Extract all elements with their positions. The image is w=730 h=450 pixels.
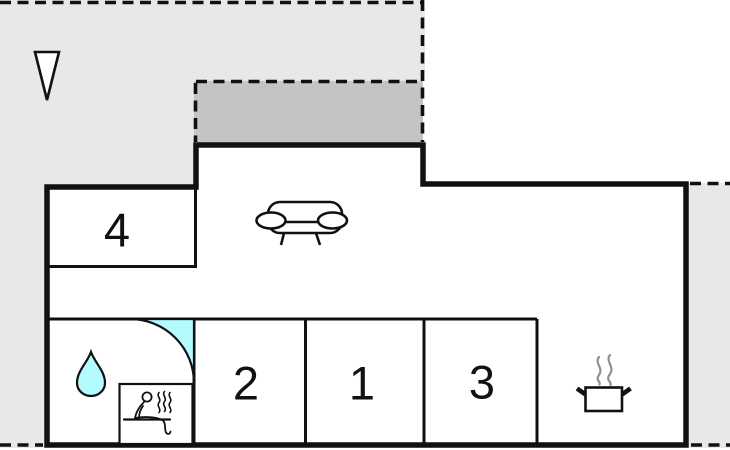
room-label-4: 4 <box>104 207 130 254</box>
terrace-area <box>194 81 423 144</box>
room-label-2: 2 <box>233 360 259 407</box>
room-label-1: 1 <box>349 360 375 407</box>
room-label-3: 3 <box>469 359 495 406</box>
sauna-room <box>120 384 193 444</box>
floor-plan: 4 2 1 3 <box>0 0 730 450</box>
